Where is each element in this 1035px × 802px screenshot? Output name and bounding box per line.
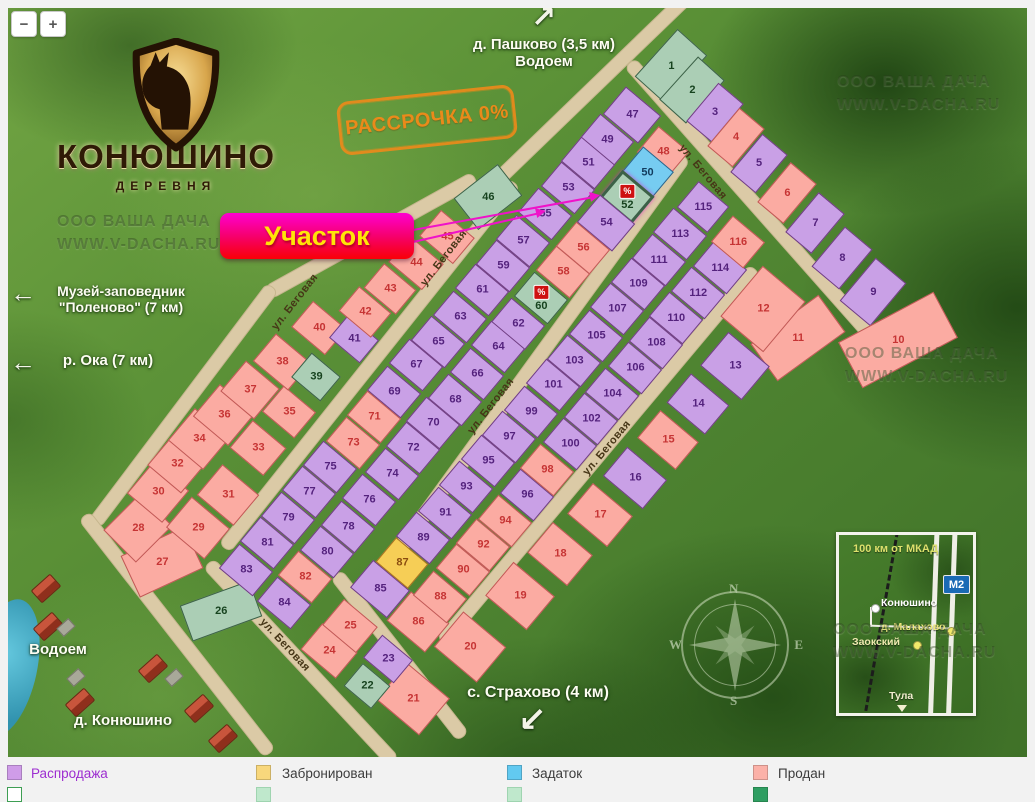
plot-label-wrap: 23 [382,654,394,665]
plot-label-wrap: 30 [152,487,164,498]
landmark-label: Водоем [29,641,87,658]
plot-label-wrap: 106 [626,363,644,374]
plot-label-wrap: 71 [368,412,380,423]
plot-number: 41 [348,334,360,345]
plot-label-wrap: 61 [476,285,488,296]
landmark-label: р. Ока (7 км) [63,352,153,369]
uchastok-banner[interactable]: Участок [220,213,414,259]
plot-label-wrap: 15 [662,435,674,446]
plot-number: 52 [621,200,633,211]
plot-label-wrap: 47 [626,110,638,121]
plot-label-wrap: 114 [711,263,729,274]
plot-label-wrap: 62 [512,319,524,330]
plot-label-wrap: 40 [313,323,325,334]
plot-number: 63 [454,312,466,323]
plot-label-wrap: 104 [603,389,621,400]
plot-label-wrap: 86 [412,617,424,628]
percent-badge: % [533,285,549,300]
plot-number: 37 [244,385,256,396]
zoom-in-button[interactable]: + [40,11,66,37]
plot-number: 107 [608,304,626,315]
plot-number: 7 [812,218,818,229]
plot-number: 25 [344,621,356,632]
m2-highway-badge: М2 [943,575,970,594]
plot-label-wrap: 14 [692,399,704,410]
plot-label-wrap: %60 [533,285,549,312]
plot-number: 81 [261,538,273,549]
direction-arrow-icon: ← [10,278,36,309]
plot-number: 53 [562,183,574,194]
plot-number: 77 [303,487,315,498]
plot-label-wrap: 115 [694,202,712,213]
plot-label-wrap: 1 [668,61,674,72]
plot-number: 59 [497,261,509,272]
plot-number: 9 [870,287,876,298]
plot-number: 111 [650,255,667,266]
plot-number: 74 [386,469,398,480]
plot-number: 109 [629,279,647,290]
plot-number: 8 [839,253,845,264]
plot-label-wrap: 116 [729,237,747,248]
plot-number: 94 [499,516,511,527]
page: { "controls": {"zoom_out": "−", "zoom_in… [0,0,1035,790]
plot-label-wrap: 67 [410,360,422,371]
plot-number: 54 [600,218,612,229]
village-house-icon [31,573,62,603]
legend-swatch-partial [753,787,768,802]
plot-number: 21 [407,694,419,705]
watermark: ООО ВАША ДАЧАWWW.V-DACHA.RU [837,70,1000,116]
plot-label-wrap: 56 [577,243,589,254]
plot-label-wrap: 91 [439,508,451,519]
plot-label-wrap: 9 [870,287,876,298]
plot-number: 84 [278,598,290,609]
plot-number: 29 [192,523,204,534]
plot-number: 12 [757,304,769,315]
plot-label-wrap: 68 [449,395,461,406]
plot-number: 17 [594,510,606,521]
plot-number: 66 [471,369,483,380]
plot-number: 51 [582,158,594,169]
plot-number: 115 [694,202,712,213]
plot-number: 64 [492,342,504,353]
plot-number: 20 [464,642,476,653]
plot-number: 98 [541,465,553,476]
plot-number: 61 [476,285,488,296]
plot-label-wrap: %52 [619,184,635,211]
inset-title: 100 км от МКАД [853,543,938,555]
plot-number: 71 [368,412,380,423]
plot-number: 82 [299,572,311,583]
plot-label-wrap: 99 [525,407,537,418]
plot-label-wrap: 83 [240,565,252,576]
inset-tula-arrow-icon [897,705,907,712]
plot-label-wrap: 43 [384,284,396,295]
plot-number: 60 [535,301,547,312]
plot-label-wrap: 51 [582,158,594,169]
plot-label-wrap: 24 [323,646,335,657]
plot-number: 50 [641,168,653,179]
plot-number: 108 [647,338,665,349]
plot-label-wrap: 113 [671,229,689,240]
uchastok-pointer-arrowhead-icon [589,190,601,202]
plot-number: 85 [374,584,386,595]
plot-label-wrap: 42 [359,307,371,318]
plot-number: 33 [252,443,264,454]
plot-label-wrap: 2 [689,85,695,96]
plot-label-wrap: 80 [321,547,333,558]
plot-number: 69 [388,387,400,398]
landmark-label: д. Конюшино [74,712,172,729]
installment-stamp: РАССРОЧКА 0% [336,84,519,156]
plot-label-wrap: 54 [600,218,612,229]
plot-number: 112 [689,288,707,299]
plot-number: 19 [514,591,526,602]
legend-swatch-partial [507,787,522,802]
plot-label-wrap: 73 [347,438,359,449]
plot-label-wrap: 35 [283,407,295,418]
plot-label-wrap: 77 [303,487,315,498]
plot-label-wrap: 92 [477,540,489,551]
plot-label-wrap: 17 [594,510,606,521]
plot-number: 18 [554,549,566,560]
plot-label-wrap: 34 [193,434,205,445]
plot-label-wrap: 31 [222,490,234,501]
plot-number: 73 [347,438,359,449]
plot-label-wrap: 4 [733,132,739,143]
plot-label-wrap: 44 [410,258,422,269]
plot-label-wrap: 38 [276,357,288,368]
plot-number: 3 [712,107,718,118]
plot-number: 49 [601,135,613,146]
plot-label-wrap: 39 [310,372,322,383]
legend-swatch [7,765,22,780]
plot-number: 43 [384,284,396,295]
plot-label-wrap: 75 [324,462,336,473]
watermark: ООО ВАША ДАЧАWWW.V-DACHA.RU [57,210,220,256]
plot-label-wrap: 76 [363,495,375,506]
plan-map: − + КОНЮШИНО ДЕРЕВНЯ РАССРОЧКА 0% Участо… [8,8,1027,757]
plot-label-wrap: 70 [427,418,439,429]
plot-number: 87 [396,558,408,569]
plot-number: 92 [477,540,489,551]
plot-label-wrap: 49 [601,135,613,146]
compass-rose-icon: N S W E [675,585,795,705]
plot-number: 24 [323,646,335,657]
plot-number: 79 [282,513,294,524]
plot-label-wrap: 105 [587,331,605,342]
legend-label: Забронирован [282,766,372,781]
plot-label-wrap: 48 [657,147,669,158]
village-shed-icon [164,668,183,687]
plot-label-wrap: 103 [565,356,583,367]
plot-label-wrap: 41 [348,334,360,345]
plot-number: 15 [662,435,674,446]
plot-label-wrap: 82 [299,572,311,583]
plot-label-wrap: 37 [244,385,256,396]
plot-number: 5 [756,158,762,169]
plot-number: 23 [382,654,394,665]
plot-number: 40 [313,323,325,334]
village-house-icon [208,723,239,753]
plot-label-wrap: 87 [396,558,408,569]
plot-number: 57 [517,236,529,247]
plot-number: 35 [283,407,295,418]
plot-label-wrap: 96 [521,490,533,501]
plot-label-wrap: 32 [171,459,183,470]
plot-label-wrap: 6 [784,188,790,199]
plot-label-wrap: 22 [361,681,373,692]
plot-label-wrap: 26 [215,606,227,617]
plot-label-wrap: 102 [582,414,600,425]
legend-swatch [507,765,522,780]
plot-label-wrap: 13 [729,361,741,372]
legend-swatch-partial [256,787,271,802]
plot-number: 4 [733,132,739,143]
plot-number: 2 [689,85,695,96]
plot-number: 26 [215,606,227,617]
plot-number: 58 [557,267,569,278]
plot-label-wrap: 107 [608,304,626,315]
plot-number: 116 [729,237,747,248]
plot-label-wrap: 90 [457,565,469,576]
plot-label-wrap: 111 [650,255,667,266]
percent-badge: % [619,184,635,199]
plot-label-wrap: 57 [517,236,529,247]
plot-number: 30 [152,487,164,498]
plot-number: 75 [324,462,336,473]
plot-label-wrap: 88 [434,592,446,603]
legend-swatch [753,765,768,780]
plot-number: 76 [363,495,375,506]
plot-number: 110 [667,313,685,324]
landmark-label: д. Пашково (3,5 км)Водоем [473,36,615,71]
plot-number: 68 [449,395,461,406]
plot-label-wrap: 58 [557,267,569,278]
plot-number: 90 [457,565,469,576]
plot-number: 44 [410,258,422,269]
plot-label-wrap: 78 [342,522,354,533]
plot-number: 28 [132,523,144,534]
plot-number: 31 [222,490,234,501]
plot-label-wrap: 79 [282,513,294,524]
direction-arrow-icon: ↗ [531,8,556,35]
plot-label-wrap: 25 [344,621,356,632]
logo: КОНЮШИНО ДЕРЕВНЯ [26,138,306,193]
plot-label-wrap: 93 [460,482,472,493]
plot-number: 27 [156,557,168,568]
plot-number: 42 [359,307,371,318]
plot-label-wrap: 33 [252,443,264,454]
plot-label-wrap: 95 [482,456,494,467]
plot-label-wrap: 97 [503,432,515,443]
plot-number: 34 [193,434,205,445]
landmark-label: Музей-заповедник"Поленово" (7 км) [57,283,185,315]
legend-swatch [256,765,271,780]
plot-number: 22 [361,681,373,692]
plot-number: 72 [407,443,419,454]
plot-label-wrap: 84 [278,598,290,609]
plot-number: 99 [525,407,537,418]
plot-label-wrap: 69 [388,387,400,398]
plot-number: 100 [561,439,579,450]
plot-number: 13 [729,361,741,372]
zoom-out-button[interactable]: − [11,11,37,37]
plot-label-wrap: 16 [629,473,641,484]
plot-number: 106 [626,363,644,374]
watermark: ООО ВАША ДАЧАWWW.V-DACHA.RU [833,618,996,664]
plot-label-wrap: 18 [554,549,566,560]
plot-number: 39 [310,372,322,383]
legend-swatch-partial [7,787,22,802]
plot-label-wrap: 100 [561,439,579,450]
plot-label-wrap: 46 [482,192,494,203]
plot-number: 103 [565,356,583,367]
plot-label-wrap: 50 [641,168,653,179]
plot-label-wrap: 3 [712,107,718,118]
plot-label-wrap: 112 [689,288,707,299]
plot-number: 78 [342,522,354,533]
plot-number: 101 [544,380,562,391]
plot-number: 46 [482,192,494,203]
plot-number: 56 [577,243,589,254]
plot-label-wrap: 94 [499,516,511,527]
horse-shield-icon [123,38,229,152]
plot-label-wrap: 53 [562,183,574,194]
plot-label-wrap: 5 [756,158,762,169]
plot-number: 91 [439,508,451,519]
plot-number: 102 [582,414,600,425]
plot-label-wrap: 89 [417,533,429,544]
plot-number: 97 [503,432,515,443]
inset-place-dot [871,604,880,613]
plot-label-wrap: 59 [497,261,509,272]
plot-label-wrap: 27 [156,557,168,568]
plot-number: 62 [512,319,524,330]
plot-label-wrap: 74 [386,469,398,480]
plot-label-wrap: 28 [132,523,144,534]
plot-number: 113 [671,229,689,240]
plot-number: 11 [792,333,804,344]
plot-number: 65 [432,337,444,348]
legend-label: Распродажа [31,766,108,781]
plot-label-wrap: 8 [839,253,845,264]
plot-number: 104 [603,389,621,400]
plot-number: 80 [321,547,333,558]
plot-number: 1 [668,61,674,72]
plot-number: 96 [521,490,533,501]
plot-label-wrap: 12 [757,304,769,315]
plot-number: 83 [240,565,252,576]
legend-label: Продан [778,766,825,781]
plot-number: 47 [626,110,638,121]
plot-number: 89 [417,533,429,544]
plot-number: 88 [434,592,446,603]
plot-number: 86 [412,617,424,628]
lake [8,593,51,743]
plot-label-wrap: 7 [812,218,818,229]
plot-label-wrap: 21 [407,694,419,705]
plot-label-wrap: 66 [471,369,483,380]
plot-label-wrap: 72 [407,443,419,454]
plot-number: 14 [692,399,704,410]
watermark: ООО ВАША ДАЧАWWW.V-DACHA.RU [845,342,1008,388]
inset-place-label: Тула [889,690,913,702]
plot-number: 38 [276,357,288,368]
plot-number: 114 [711,263,729,274]
plot-label-wrap: 36 [218,410,230,421]
plot-number: 67 [410,360,422,371]
plot-label-wrap: 20 [464,642,476,653]
plot-number: 32 [171,459,183,470]
inset-place-label: Конюшино [881,597,937,609]
plot-label-wrap: 11 [792,333,804,344]
plot-label-wrap: 29 [192,523,204,534]
plot-number: 70 [427,418,439,429]
plot-label-wrap: 64 [492,342,504,353]
plot-number: 16 [629,473,641,484]
village-shed-icon [66,668,85,687]
plot-label-wrap: 81 [261,538,273,549]
plot-number: 93 [460,482,472,493]
logo-subtitle: ДЕРЕВНЯ [26,179,306,193]
plot-label-wrap: 98 [541,465,553,476]
direction-arrow-icon: ← [10,347,36,378]
plot-label-wrap: 101 [544,380,562,391]
plot-number: 48 [657,147,669,158]
plot-label-wrap: 19 [514,591,526,602]
plot-label-wrap: 63 [454,312,466,323]
plot-label-wrap: 85 [374,584,386,595]
plot-number: 6 [784,188,790,199]
legend-label: Задаток [532,766,582,781]
direction-arrow-icon: ↙ [518,700,547,740]
plot-label-wrap: 65 [432,337,444,348]
village-house-icon [184,693,215,723]
plot-number: 36 [218,410,230,421]
plot-label-wrap: 110 [667,313,685,324]
plot-label-wrap: 108 [647,338,665,349]
plot-label-wrap: 109 [629,279,647,290]
plot-number: 95 [482,456,494,467]
plot-number: 105 [587,331,605,342]
